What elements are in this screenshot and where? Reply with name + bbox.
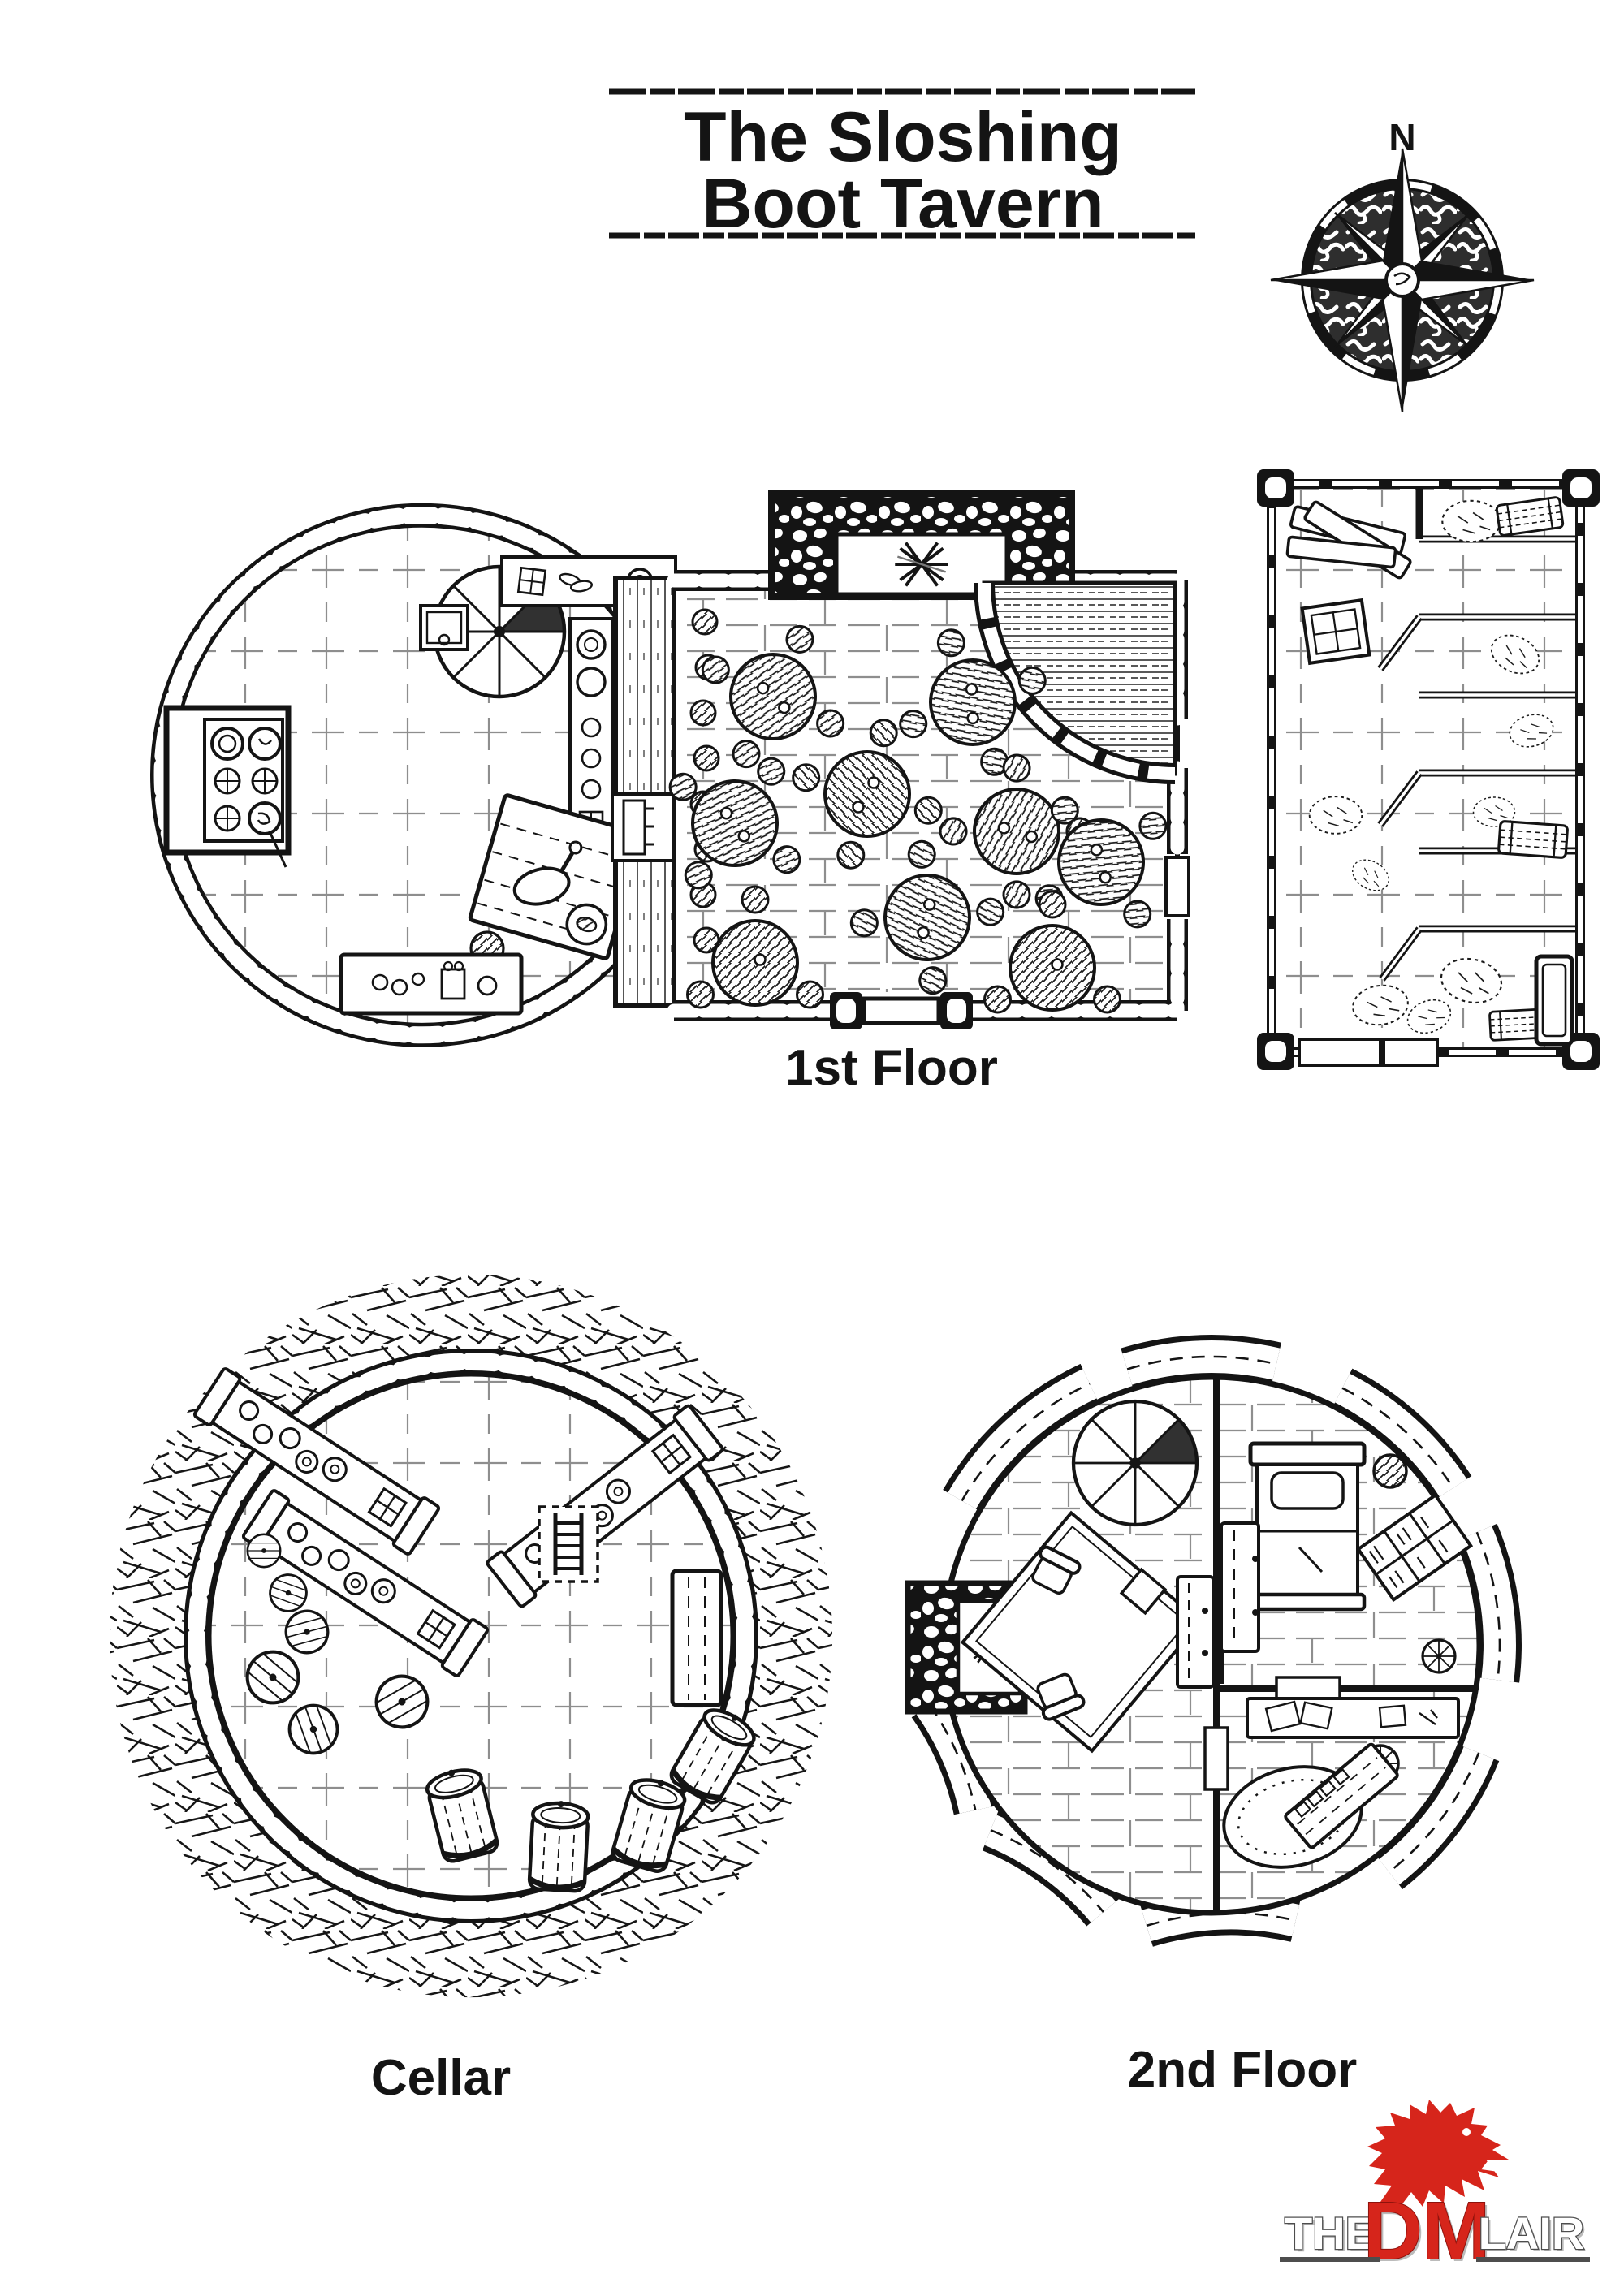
hay-pile-icon [1310, 796, 1363, 834]
first-floor-plan: 1st Floor [162, 469, 1600, 1096]
large-barrel-icon [529, 1799, 590, 1891]
main-hall [640, 494, 1206, 1029]
dm-lair-logo: THE DM LAIR THE DM LAIR [1280, 2100, 1590, 2279]
stable-crate-icon [1302, 600, 1370, 663]
kitchen-stove-icon [166, 708, 288, 867]
title-block: The Sloshing Boot Tavern [609, 92, 1195, 243]
hay-bale-icon [1498, 821, 1567, 857]
side-door-icon [1166, 857, 1189, 916]
cabinet-icon [1177, 1577, 1213, 1687]
door-icon [1276, 1677, 1340, 1700]
cellar-plan: Cellar [110, 1275, 832, 2106]
kitchen-room [162, 516, 686, 1035]
feed-trough-icon [1536, 956, 1572, 1044]
hay-pile-icon [1442, 501, 1500, 542]
stool-icon [1374, 1455, 1406, 1487]
logo-word-lair: LAIR [1479, 2208, 1585, 2259]
stable-building [1257, 469, 1600, 1070]
double-door-entrance-icon [830, 992, 973, 1029]
door-icon [1205, 1728, 1228, 1789]
bed-icon [1250, 1444, 1364, 1609]
logo-word-the: THE [1285, 2208, 1376, 2259]
compass-star-icon [1271, 149, 1534, 412]
wheel-stool-icon [1423, 1640, 1455, 1672]
second-floor-plan: 2nd Floor [908, 1357, 1500, 2098]
storage-table-icon [672, 1571, 721, 1705]
tavern-map: The Sloshing Boot Tavern N [0, 0, 1624, 2296]
page-title-line2: Boot Tavern [702, 165, 1104, 243]
first-floor-label: 1st Floor [785, 1040, 998, 1096]
small-cask-icon [248, 1534, 280, 1567]
second-floor-label: 2nd Floor [1128, 2042, 1357, 2098]
stable-door-icon [1384, 1039, 1437, 1065]
stable-floor [1276, 489, 1575, 1047]
bottle-counter-icon [341, 955, 521, 1013]
dresser-icon [1221, 1523, 1259, 1651]
logo-underline-left [1280, 2257, 1380, 2262]
ladder-icon [539, 1507, 598, 1582]
stable-door-icon [1299, 1039, 1380, 1065]
logo-word-dm: DM [1363, 2186, 1490, 2277]
compass-rose: N [1271, 116, 1534, 412]
logo-underline-right [1476, 2257, 1590, 2262]
spiral-staircase-icon [1073, 1401, 1197, 1525]
pillow-icon [1272, 1473, 1343, 1508]
writing-desk-icon [1247, 1698, 1458, 1737]
storage-crate-icon [421, 606, 468, 650]
cellar-label: Cellar [371, 2050, 511, 2106]
